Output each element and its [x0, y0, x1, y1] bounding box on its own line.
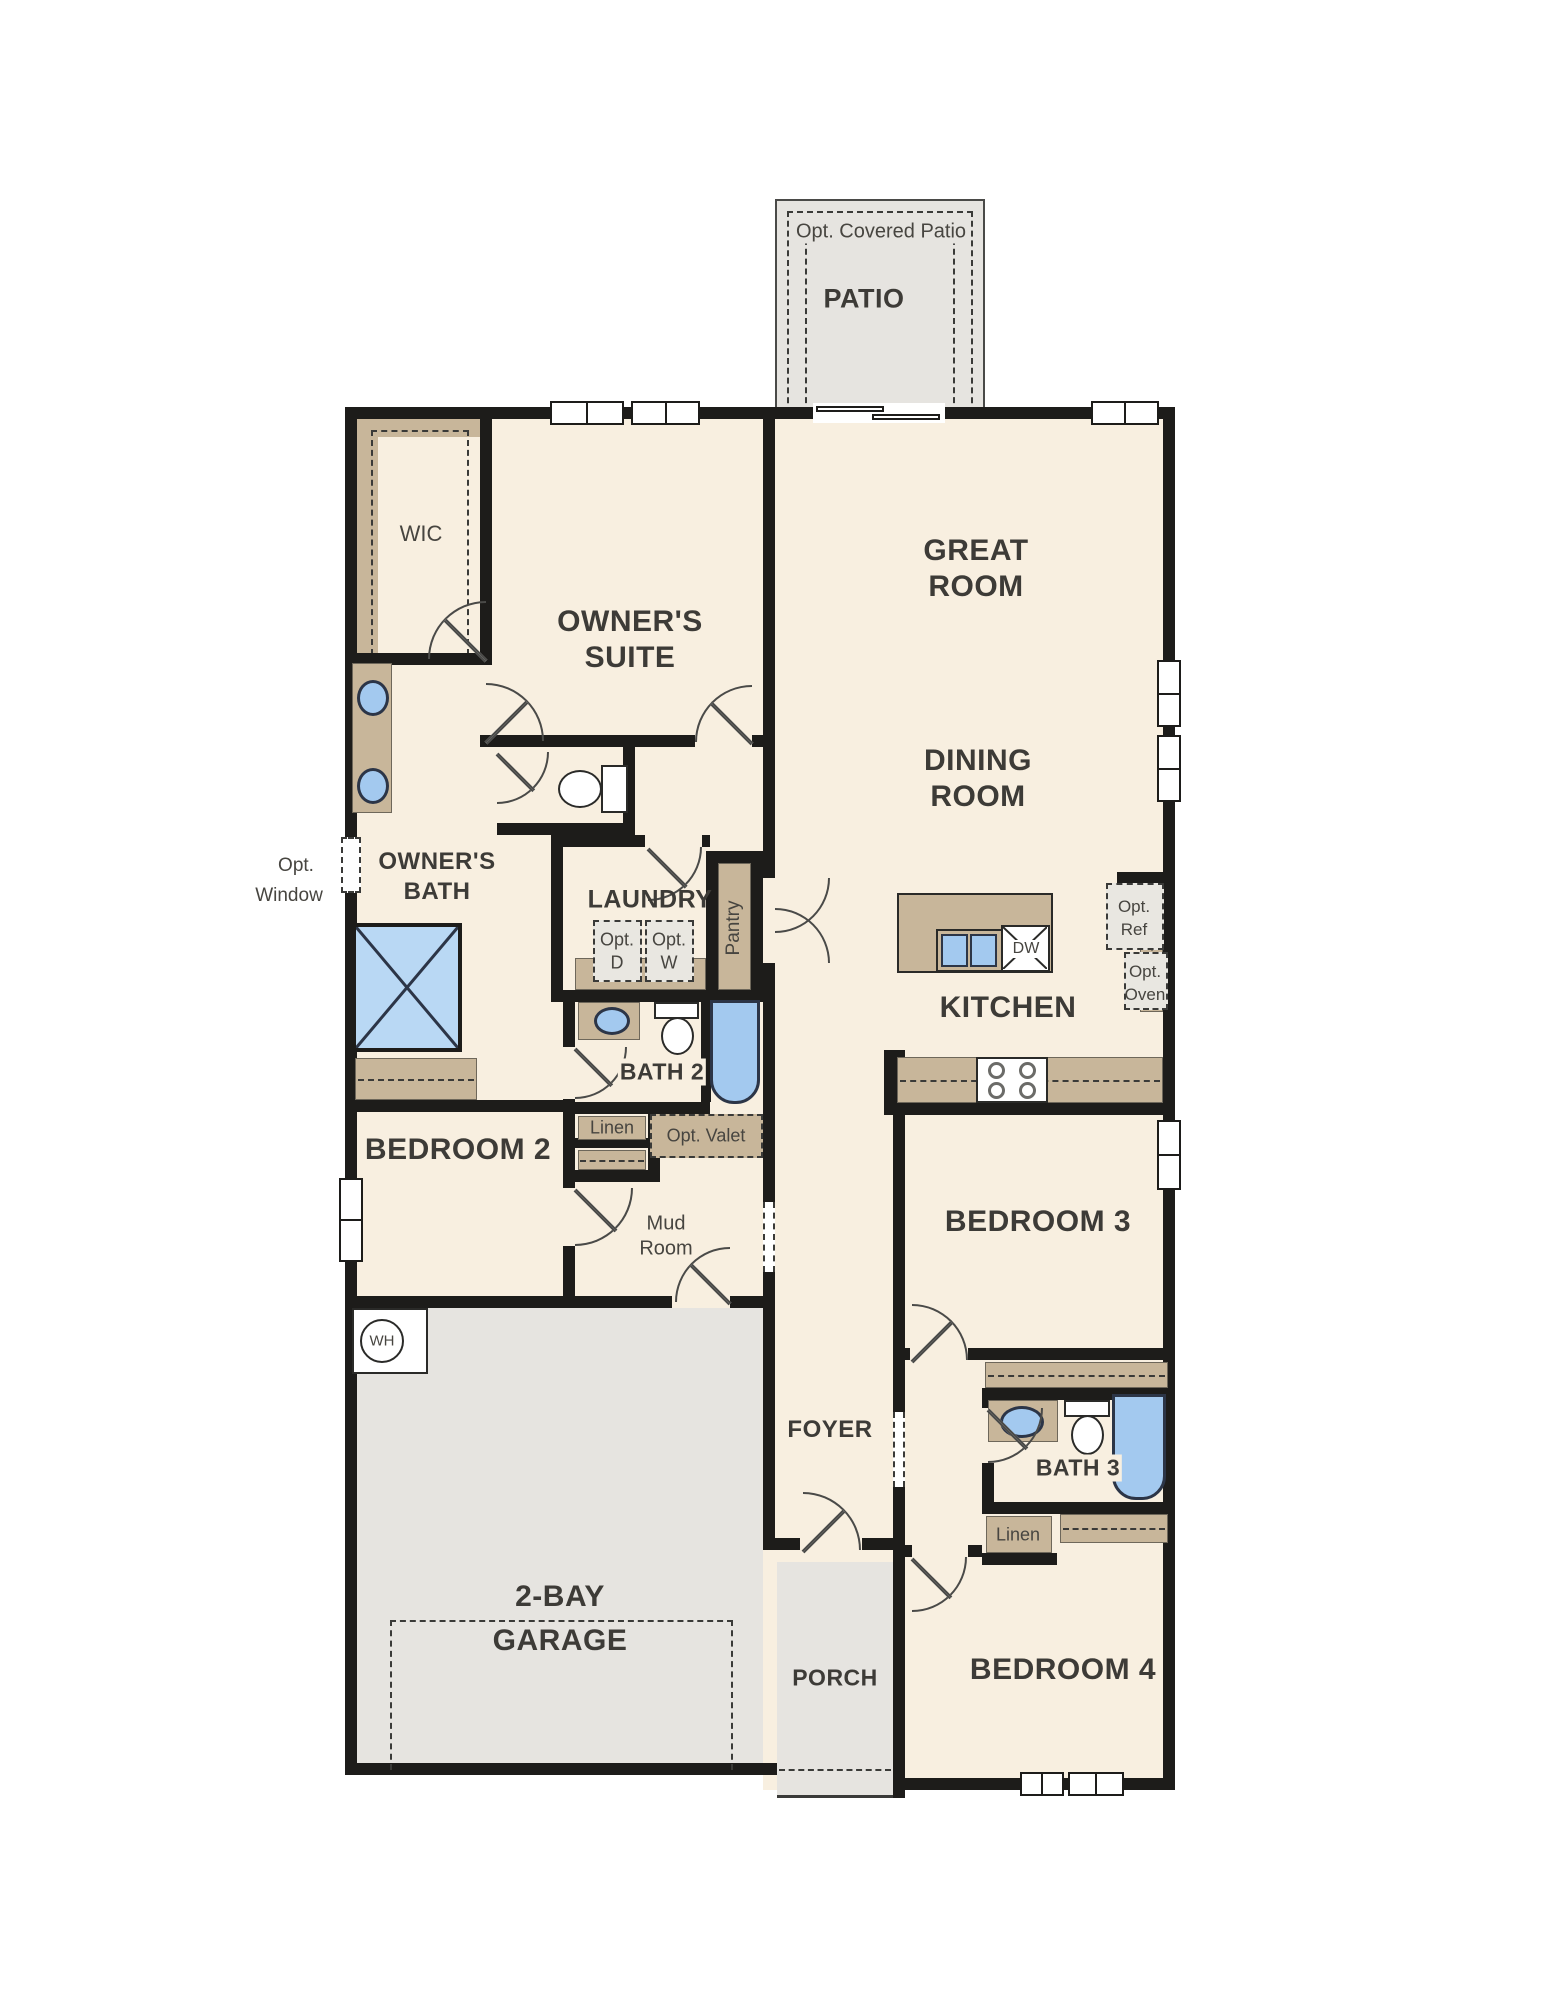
patio-dashed-inner	[805, 229, 955, 413]
wall-bath3-bottom	[982, 1502, 1170, 1514]
foyer-label: FOYER	[787, 1416, 872, 1444]
bath3-label: BATH 3	[1034, 1455, 1122, 1482]
bath3-toilet-bowl	[1071, 1415, 1104, 1455]
owners-shower	[352, 923, 462, 1052]
opt-d-label-2: D	[611, 953, 624, 974]
window-bedroom4-2	[1068, 1772, 1124, 1796]
wall-garage-top-left	[345, 1296, 672, 1308]
bed4-closet-dash	[1063, 1528, 1165, 1530]
wall-pantry-top	[706, 851, 763, 863]
great-room-label-1: GREAT	[923, 534, 1028, 568]
wh-label: WH	[370, 1333, 395, 1350]
wall-kitchen-bottom	[893, 1103, 1163, 1115]
pantry-label: Pantry	[723, 901, 745, 956]
porch-label: PORCH	[792, 1665, 878, 1692]
bedroom4-label: BEDROOM 4	[970, 1653, 1156, 1687]
garage-label-2: GARAGE	[493, 1624, 628, 1658]
opt-d-label-1: Opt.	[600, 930, 634, 951]
opt-window-label-2: Window	[255, 885, 323, 907]
bath3-tub	[1112, 1394, 1166, 1500]
owners-sink-2	[357, 768, 389, 804]
opt-oven-label-2: Oven	[1125, 985, 1166, 1005]
wall-bed3-bottom-left	[905, 1348, 910, 1360]
window-bedroom3-right	[1157, 1120, 1181, 1190]
dining-room-label-2: ROOM	[930, 780, 1025, 814]
owners-bath-label-1: OWNER'S	[378, 848, 495, 876]
owners-suite-label-2: SUITE	[585, 641, 676, 675]
patio-opt-label: Opt. Covered Patio	[793, 221, 969, 244]
window-greatroom-right-1	[1157, 660, 1181, 727]
wall-right	[1163, 407, 1175, 1790]
owners-toilet-tank	[601, 765, 628, 813]
wall-bed2-closet-bottom	[345, 1100, 575, 1112]
wall-laundry-top-left	[551, 835, 645, 847]
island-sink-left	[941, 934, 968, 967]
opt-w-label-2: W	[661, 953, 678, 974]
wall-bath2-bottom	[563, 1102, 710, 1114]
bed2-closet-dash	[358, 1079, 474, 1081]
dw-label: DW	[1012, 940, 1041, 958]
opt-ref-label-2: Ref	[1121, 920, 1147, 940]
foyer-hall-opening	[893, 1412, 905, 1487]
stove-burner-1	[988, 1062, 1005, 1079]
wall-bed4-hall-left	[905, 1545, 912, 1557]
mud-room-label-2: Room	[639, 1238, 692, 1261]
wall-laundry-left	[551, 847, 563, 1002]
window-greatroom-top	[1091, 401, 1159, 425]
stove	[976, 1057, 1048, 1103]
bedroom2-label: BEDROOM 2	[365, 1133, 551, 1167]
stove-burner-3	[988, 1082, 1005, 1099]
laundry-label: LAUNDRY	[588, 886, 713, 915]
wall-bath2-left-upper	[563, 1002, 575, 1047]
wall-central-upper	[763, 419, 775, 878]
wall-bed2-hall-upper	[563, 1110, 575, 1188]
opt-oven-label-1: Opt.	[1129, 962, 1161, 982]
wall-bed2-hall-lower	[563, 1246, 575, 1296]
patio-label: PATIO	[824, 284, 905, 315]
wall-central-lower	[763, 1272, 775, 1550]
mudroom-foyer-opening	[763, 1202, 775, 1272]
garage-label-1: 2-BAY	[515, 1580, 605, 1614]
owners-toilet-bowl	[558, 770, 602, 808]
wall-porch-top-left	[763, 1538, 800, 1550]
bottom-left-mask	[345, 1775, 763, 1800]
opt-valet-label: Opt. Valet	[667, 1126, 746, 1147]
floor-plan: Opt. Covered Patio PATIO	[0, 0, 1545, 2000]
stove-burner-4	[1019, 1082, 1036, 1099]
island-sink-right	[970, 934, 997, 967]
bath2-label: BATH 2	[618, 1059, 706, 1086]
linen2-shelf-dash	[580, 1160, 644, 1162]
wall-garage-top-right	[730, 1296, 763, 1308]
linen3-label: Linen	[996, 1525, 1040, 1546]
wall-porch-top-right	[862, 1538, 905, 1550]
sliding-door-panel-2	[872, 414, 940, 420]
wall-pantry-right	[751, 863, 763, 990]
window-greatroom-right-2	[1157, 735, 1181, 802]
opt-ref-label-1: Opt.	[1118, 897, 1150, 917]
opt-w-label-1: Opt.	[652, 930, 686, 951]
owners-bath-label-2: BATH	[404, 878, 471, 906]
wall-linen2-bottom	[563, 1170, 660, 1182]
window-suite-top-2	[631, 401, 700, 425]
opt-window-dashed	[341, 837, 361, 893]
owners-sink-1	[357, 680, 389, 716]
owners-suite-label-1: OWNER'S	[557, 605, 703, 639]
wall-wc-bottom	[497, 823, 635, 835]
kitchen-label: KITCHEN	[940, 991, 1077, 1025]
wall-bed3-bottom-right	[968, 1348, 1170, 1360]
window-bedroom2-left	[339, 1178, 363, 1262]
porch-dashed-edge	[779, 1769, 891, 1771]
wall-bed4-hall-right	[968, 1545, 982, 1557]
bed3-closet-dash	[988, 1375, 1165, 1377]
bath2-toilet-bowl	[661, 1017, 694, 1055]
sliding-door-panel-1	[816, 406, 884, 412]
great-room-label-2: ROOM	[928, 570, 1023, 604]
wall-central-mid	[763, 963, 775, 1202]
wic-label: WIC	[400, 521, 443, 547]
bedroom3-label: BEDROOM 3	[945, 1205, 1131, 1239]
linen2-label: Linen	[590, 1118, 634, 1139]
mud-room-label-1: Mud	[647, 1213, 686, 1236]
sliding-door	[813, 403, 945, 423]
bath2-sink	[594, 1007, 630, 1035]
window-bedroom4-1	[1020, 1772, 1064, 1796]
window-suite-top-1	[550, 401, 624, 425]
wall-laundry-top-right	[702, 835, 710, 847]
bath2-tub	[710, 1000, 760, 1104]
wall-linen3-bottom	[982, 1553, 1057, 1565]
wall-suite-bottom-right	[752, 735, 765, 747]
wall-top	[345, 407, 1175, 419]
stove-burner-2	[1019, 1062, 1036, 1079]
dining-room-label-1: DINING	[924, 744, 1032, 778]
opt-window-label-1: Opt.	[278, 855, 314, 877]
wall-foyer-right-lower	[893, 1487, 905, 1798]
wall-pantry-left	[706, 863, 718, 990]
